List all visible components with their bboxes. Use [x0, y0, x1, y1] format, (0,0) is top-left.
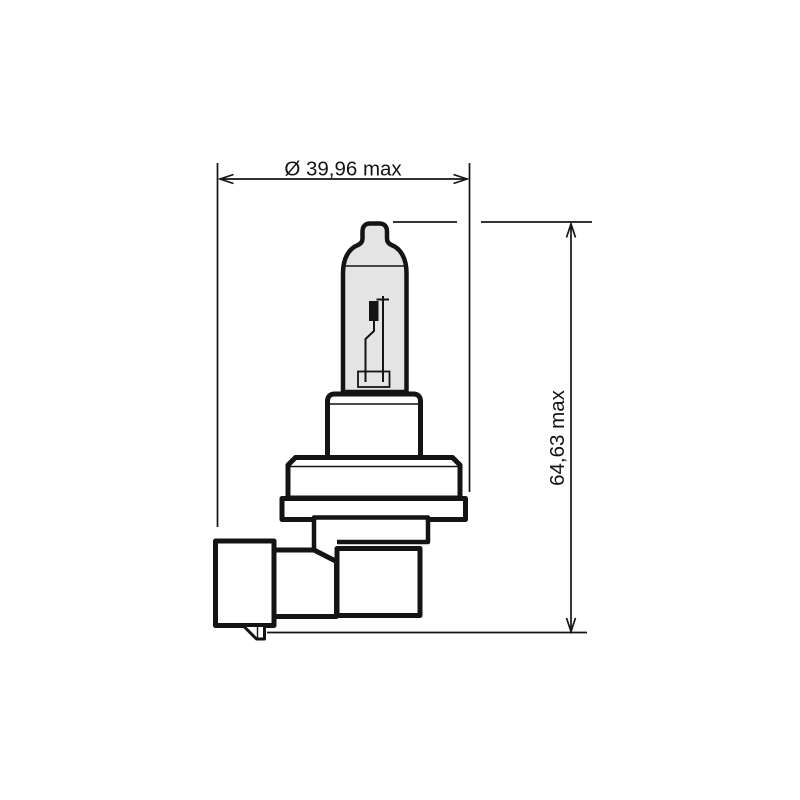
connector-block-left: [216, 541, 275, 626]
bulb: [216, 224, 466, 640]
connector-block-right: [337, 549, 420, 616]
base-skirt: [314, 518, 428, 551]
diameter-dimension-label: Ø 39,96 max: [284, 158, 402, 181]
bulb-technical-drawing: Ø 39,96 max 64,63 max: [0, 0, 800, 800]
base-collar: [288, 458, 460, 499]
height-dimension-label: 64,63 max: [546, 389, 569, 485]
filament-coil: [369, 301, 379, 321]
drawing-canvas: Ø 39,96 max 64,63 max: [0, 0, 800, 800]
connector-block-middle: [274, 550, 337, 617]
connector-tab: [243, 626, 265, 640]
